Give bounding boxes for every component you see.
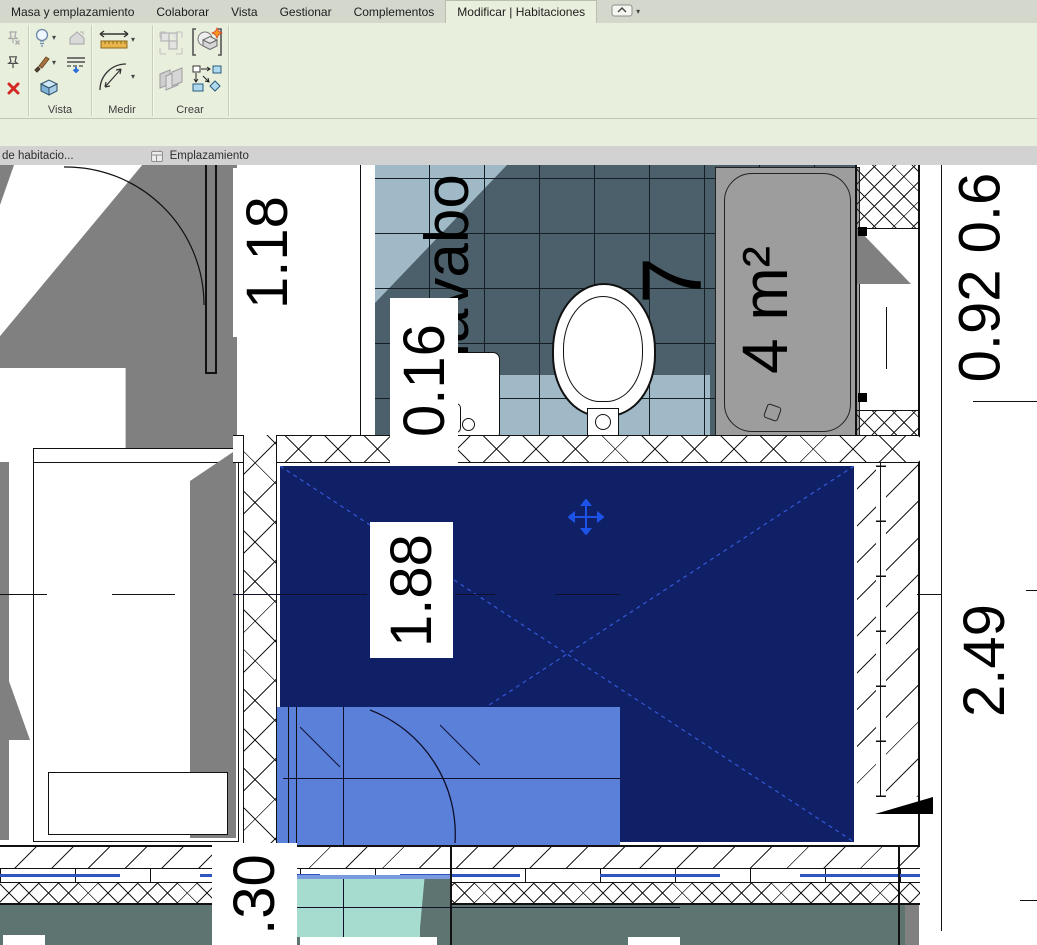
highlighted-wall-centerline [295, 875, 451, 879]
options-bar [0, 118, 1037, 147]
ribbon-body: ▾ ▾ Vista ▾ [0, 23, 1037, 118]
dimension-0-30[interactable]: .30 [212, 843, 297, 945]
ribbon-minimize-caret-icon: ▾ [636, 8, 640, 16]
create-assembly-button[interactable] [156, 27, 186, 59]
threed-box-icon [37, 76, 61, 98]
door-sill-line [283, 778, 620, 779]
door-frame-line [215, 165, 217, 373]
right-wall-upper [857, 165, 919, 229]
tab-masa-y-emplazamiento[interactable]: Masa y emplazamiento [0, 0, 145, 23]
wall-band-bottom [0, 845, 920, 905]
toilet-valve [595, 414, 611, 430]
create-similar-button[interactable] [190, 63, 224, 95]
bottom-notch [628, 937, 680, 945]
panel-label-medir[interactable]: Medir [93, 104, 151, 116]
unpin-icon [5, 30, 22, 47]
dimension-0-92[interactable]: 0.92 0.6 [948, 165, 1012, 420]
measure-length-button[interactable]: ▾ [97, 28, 135, 52]
ribbon-tab-bar: Masa y emplazamiento Colaborar Vista Ges… [0, 0, 1037, 23]
terrain-band [0, 905, 905, 945]
unpin-button[interactable] [3, 28, 23, 48]
centerline-dash [233, 594, 367, 595]
create-parts-button[interactable] [156, 63, 186, 95]
door-opening-edge [450, 845, 452, 945]
panel-label-vista[interactable]: Vista [30, 104, 90, 116]
wall-band-top [233, 435, 920, 463]
wall-strip-left [243, 435, 277, 847]
door-frame-line [205, 165, 207, 373]
right-wall-outer-edge [918, 165, 920, 845]
right-wall-dim-ticks [876, 453, 886, 797]
pin-icon [5, 54, 21, 70]
bed-headboard-line [33, 462, 237, 463]
visibility-caret-icon: ▾ [52, 34, 56, 42]
right-wall-lower [857, 453, 919, 797]
measure-caret-icon: ▾ [131, 36, 135, 44]
ref-line-vertical [941, 165, 942, 931]
door-frame-cap [205, 372, 217, 374]
ribbon-minimize-icon [611, 4, 633, 20]
terrain-gray-sliver [905, 905, 919, 945]
render-button[interactable] [66, 27, 88, 49]
create-group-button[interactable] [190, 25, 224, 59]
panel-medir: ▾ ▾ Medir [93, 23, 151, 118]
panel-divider [228, 25, 230, 116]
tab-modificar-habitaciones[interactable]: Modificar | Habitaciones [445, 0, 597, 23]
assembly-cubes-icon [157, 29, 185, 57]
tab-gestionar[interactable]: Gestionar [269, 0, 343, 23]
move-crosshair-icon[interactable] [568, 499, 604, 535]
view-tab-plano-habitaciones[interactable]: de habitacio... [0, 150, 80, 162]
bathroom-left-wall [360, 165, 376, 453]
view-tab-emplazamiento[interactable]: Emplazamiento [170, 150, 249, 162]
wall-insulation [0, 869, 920, 882]
centerline-dash [0, 594, 47, 595]
centerline-dash [555, 594, 620, 595]
dimension-1-18[interactable]: 1.18 [233, 168, 302, 337]
paint-caret-icon: ▾ [52, 59, 56, 67]
parts-panels-icon [156, 64, 186, 94]
door-leaf-arc [280, 707, 620, 852]
centerline-dash [112, 594, 175, 595]
panel-modify-sliver [0, 23, 28, 118]
view-plan-icon [150, 149, 164, 163]
room-area-tag[interactable]: 4 m² [725, 200, 805, 420]
terrain-grid-line [295, 907, 680, 908]
underlay-lines-icon [65, 54, 87, 74]
dimension-1-88[interactable]: 1.88 [370, 522, 453, 658]
ref-line-h4 [1020, 900, 1037, 901]
ribbon-minimize-button[interactable]: ▾ [611, 0, 640, 23]
panel-vista: ▾ ▾ Vista [30, 23, 90, 118]
window-shadow [857, 228, 911, 284]
underlay-button[interactable] [64, 53, 88, 75]
shadow-left-sliver [0, 462, 9, 840]
ref-line-h2 [917, 594, 941, 595]
paint-button[interactable]: ▾ [32, 53, 56, 73]
bottom-notch [300, 937, 437, 945]
room-number-tag[interactable]: 7 [625, 215, 720, 345]
render-house-icon [67, 29, 87, 47]
panel-crear: Crear [154, 23, 226, 118]
window-jamb [858, 227, 867, 236]
create-similar-icon [191, 64, 223, 94]
dimension-0-16[interactable]: 0.16 [390, 298, 458, 463]
measure-angle-icon [97, 61, 131, 93]
drawing-canvas[interactable]: lavabo 7 4 m² 1.18 0.16 1.88 .30 2.49 0.… [0, 165, 1037, 945]
window-jamb [858, 393, 867, 402]
revit-window: Masa y emplazamiento Colaborar Vista Ges… [0, 0, 1037, 945]
create-group-icon [191, 26, 223, 58]
lightbulb-icon [32, 27, 52, 49]
bottom-notch [3, 935, 45, 945]
centerline-dash [455, 594, 495, 595]
tab-vista[interactable]: Vista [220, 0, 268, 23]
delete-button[interactable] [3, 78, 23, 98]
toggle-visibility-button[interactable]: ▾ [32, 27, 56, 49]
ref-line-h3 [1026, 590, 1037, 591]
default-3d-view-button[interactable] [36, 75, 62, 99]
view-tab-bar: de habitacio... Emplazamiento [0, 146, 1037, 166]
angle-caret-icon: ▾ [131, 73, 135, 81]
bed-footboard [48, 772, 228, 835]
section-arrow [875, 797, 933, 814]
panel-label-crear[interactable]: Crear [154, 104, 226, 116]
dimension-2-49[interactable]: 2.49 [952, 580, 1016, 740]
terrain-edge-line [898, 845, 900, 945]
measure-ruler-icon [97, 28, 131, 52]
paintbrush-icon [32, 53, 52, 73]
tab-colaborar[interactable]: Colaborar [145, 0, 220, 23]
measure-angle-button[interactable]: ▾ [97, 61, 135, 93]
window-glass-line [886, 307, 887, 369]
tab-complementos[interactable]: Complementos [343, 0, 446, 23]
door-swing-arc [0, 165, 240, 385]
pin-button[interactable] [3, 52, 23, 72]
delete-x-icon [6, 81, 21, 96]
